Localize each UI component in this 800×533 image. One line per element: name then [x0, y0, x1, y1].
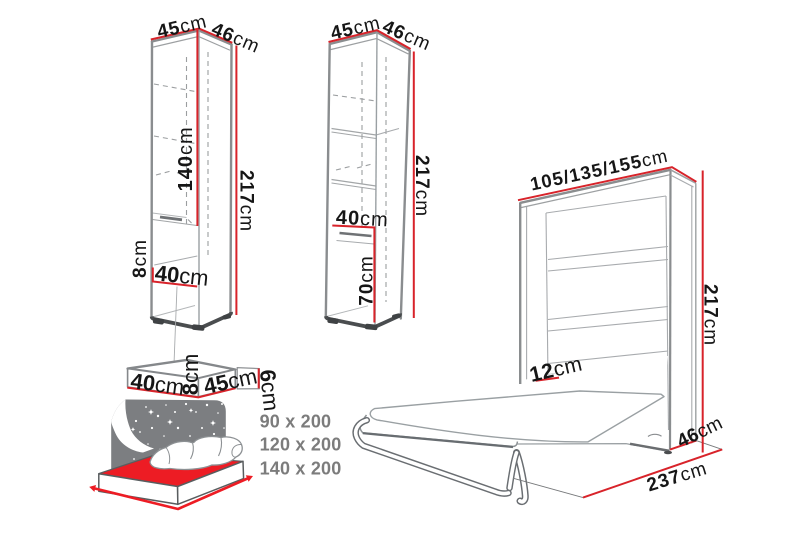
svg-text:217cm: 217cm: [411, 155, 432, 217]
svg-text:8cm: 8cm: [130, 239, 151, 278]
svg-text:40cm: 40cm: [335, 207, 389, 232]
svg-text:120 x 200: 120 x 200: [260, 435, 342, 455]
svg-text:217cm: 217cm: [700, 284, 721, 346]
svg-text:90 x 200: 90 x 200: [260, 411, 332, 431]
svg-text:70cm: 70cm: [357, 255, 378, 305]
svg-text:140cm: 140cm: [175, 126, 197, 191]
svg-text:217cm: 217cm: [236, 170, 257, 232]
svg-text:8cm: 8cm: [178, 354, 203, 396]
svg-text:6cm: 6cm: [255, 368, 284, 412]
svg-text:140 x 200: 140 x 200: [260, 458, 342, 478]
